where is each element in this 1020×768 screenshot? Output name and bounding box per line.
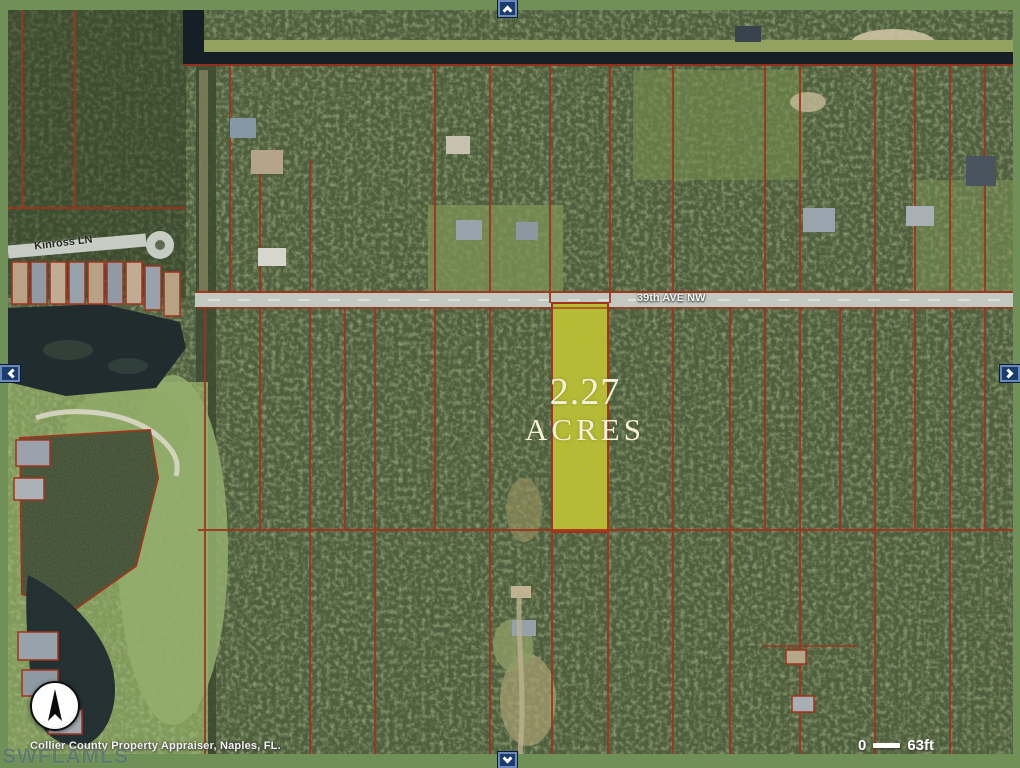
pan-right-button[interactable] [999,364,1020,383]
chevron-right-icon [1003,369,1013,379]
attribution-text: Collier County Property Appraiser, Naple… [30,740,281,752]
scale-start-label: 0 [858,737,866,754]
chevron-up-icon [503,6,513,16]
map-scale-bar: 0 63ft [858,737,934,754]
north-arrow-icon [35,686,75,726]
lake [8,304,186,396]
canal-bank [204,40,1013,53]
aerial-map[interactable] [8,10,1013,754]
compass-north-indicator [30,681,80,731]
map-viewer: 2.27 ACRES Kinross LN 39th AVE NW Collie… [0,0,1020,768]
pan-up-button[interactable] [497,0,518,18]
chevron-left-icon [7,369,17,379]
chevron-down-icon [503,753,513,763]
driveway [519,590,522,754]
scale-bar-segment [873,743,900,748]
aerial-imagery [8,10,1013,754]
pan-down-button[interactable] [497,751,518,768]
pan-left-button[interactable] [0,364,21,383]
scale-end-label: 63ft [907,737,934,754]
street-label-39th-ave-nw: 39th AVE NW [637,292,705,304]
